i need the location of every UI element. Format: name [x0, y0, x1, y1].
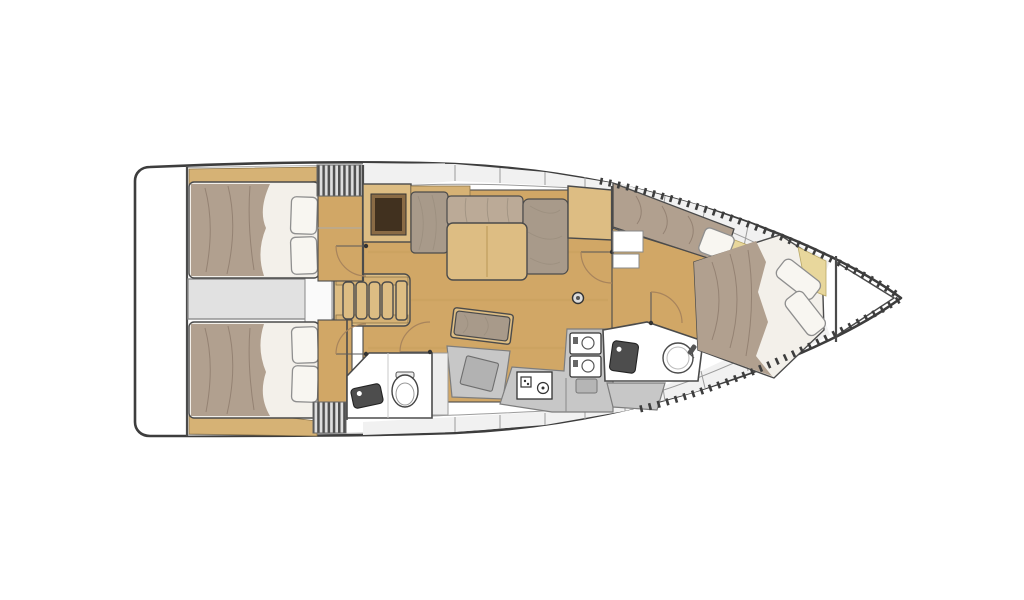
aft-cabin-starboard: [189, 319, 352, 433]
settee-back-cushion: [447, 196, 523, 225]
step-tread: [356, 282, 367, 319]
aft-head: [347, 353, 448, 418]
stove: [517, 372, 552, 399]
bow-cabin-berth: [694, 235, 828, 378]
floor-plan-svg: [0, 0, 1024, 600]
galley-locker: [576, 379, 597, 393]
yacht-floor-plan-canvas: [0, 0, 1024, 600]
door-hinge: [428, 350, 432, 354]
aft-cabin-port: [189, 165, 363, 281]
under-berth-locker: [613, 231, 643, 252]
step-tread: [382, 282, 393, 319]
forward-head: [603, 322, 703, 410]
pillow: [290, 237, 317, 275]
deck-hatch-port: [317, 165, 361, 196]
sink-faucet: [573, 360, 578, 367]
under-berth-locker: [613, 254, 639, 268]
step-tread: [369, 282, 380, 319]
deck-hatch-starboard: [313, 402, 346, 433]
step-tread: [343, 282, 354, 319]
door-hinge: [364, 244, 368, 248]
mast-post-center: [576, 296, 580, 300]
companionway-steps: [334, 274, 410, 326]
head-sink: [609, 340, 639, 373]
wet-locker: [432, 353, 448, 415]
tv-cabinet-opening: [375, 198, 402, 231]
cabin-dressing-area: [318, 196, 363, 281]
sink-unit: [609, 340, 639, 373]
door-hinge: [364, 352, 368, 356]
head-step: [607, 383, 665, 410]
pillow: [291, 366, 318, 403]
sink-faucet: [573, 337, 578, 344]
pillow: [291, 327, 318, 364]
settee-arm-cushion: [411, 192, 448, 253]
steps-landing: [396, 281, 407, 320]
pillow: [290, 197, 317, 235]
bow-anchor-locker: [836, 256, 894, 342]
sideboard: [568, 186, 612, 240]
door-hinge: [649, 321, 653, 325]
nav-bench: [450, 307, 513, 344]
